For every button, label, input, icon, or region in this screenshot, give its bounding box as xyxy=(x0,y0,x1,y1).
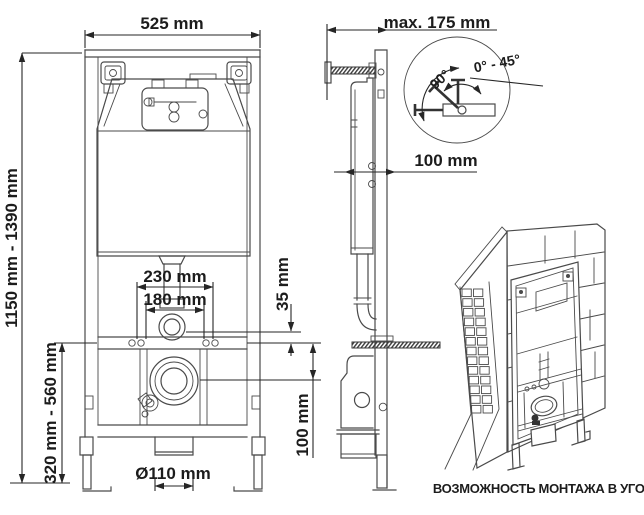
cistern-profile xyxy=(351,78,376,254)
fixing-inner-label: 180 mm xyxy=(143,290,206,309)
corner-view xyxy=(445,224,605,470)
angle-range-label: 0° - 45° xyxy=(472,51,521,76)
installation-drawing: 525 mm max. 175 mm 1150 mm - 1390 mm 230… xyxy=(0,0,644,515)
height-range-label: 1150 mm - 1390 mm xyxy=(2,168,21,328)
angle-bracket xyxy=(443,104,495,116)
outlet-diameter-label: Ø110 mm xyxy=(135,464,211,483)
drawing-canvas: 525 mm max. 175 mm 1150 mm - 1390 mm 230… xyxy=(0,0,644,515)
fixing-rail xyxy=(98,337,247,349)
wall-anchor-plate xyxy=(325,62,331,83)
flush-offset-label: 35 mm xyxy=(273,257,292,311)
anchor-rod xyxy=(331,67,375,74)
flush-pipe-profile xyxy=(354,254,376,330)
outlet-template xyxy=(155,437,193,455)
outlet-height-range-label: 320 mm - 560 mm xyxy=(41,342,60,484)
max-depth-label: max. 175 mm xyxy=(384,13,491,32)
outlet-drop-label: 100 mm xyxy=(293,393,312,456)
frame-depth-label: 100 mm xyxy=(414,151,477,170)
drain-elbow-profile xyxy=(337,356,387,458)
bolt-horizontal xyxy=(415,104,443,116)
bolt-vertical xyxy=(451,80,465,104)
angle-detail xyxy=(404,37,543,143)
access-panel xyxy=(142,80,208,130)
dimensions xyxy=(10,24,497,491)
corner-caption: ВОЗМОЖНОСТЬ МОНТАЖА В УГОЛ xyxy=(433,481,644,496)
front-width-label: 525 mm xyxy=(140,14,203,33)
wall-bracket-left xyxy=(101,62,125,93)
fixing-outer-label: 230 mm xyxy=(143,267,206,286)
cistern xyxy=(97,74,250,256)
bowl-stud-rod xyxy=(352,342,440,348)
